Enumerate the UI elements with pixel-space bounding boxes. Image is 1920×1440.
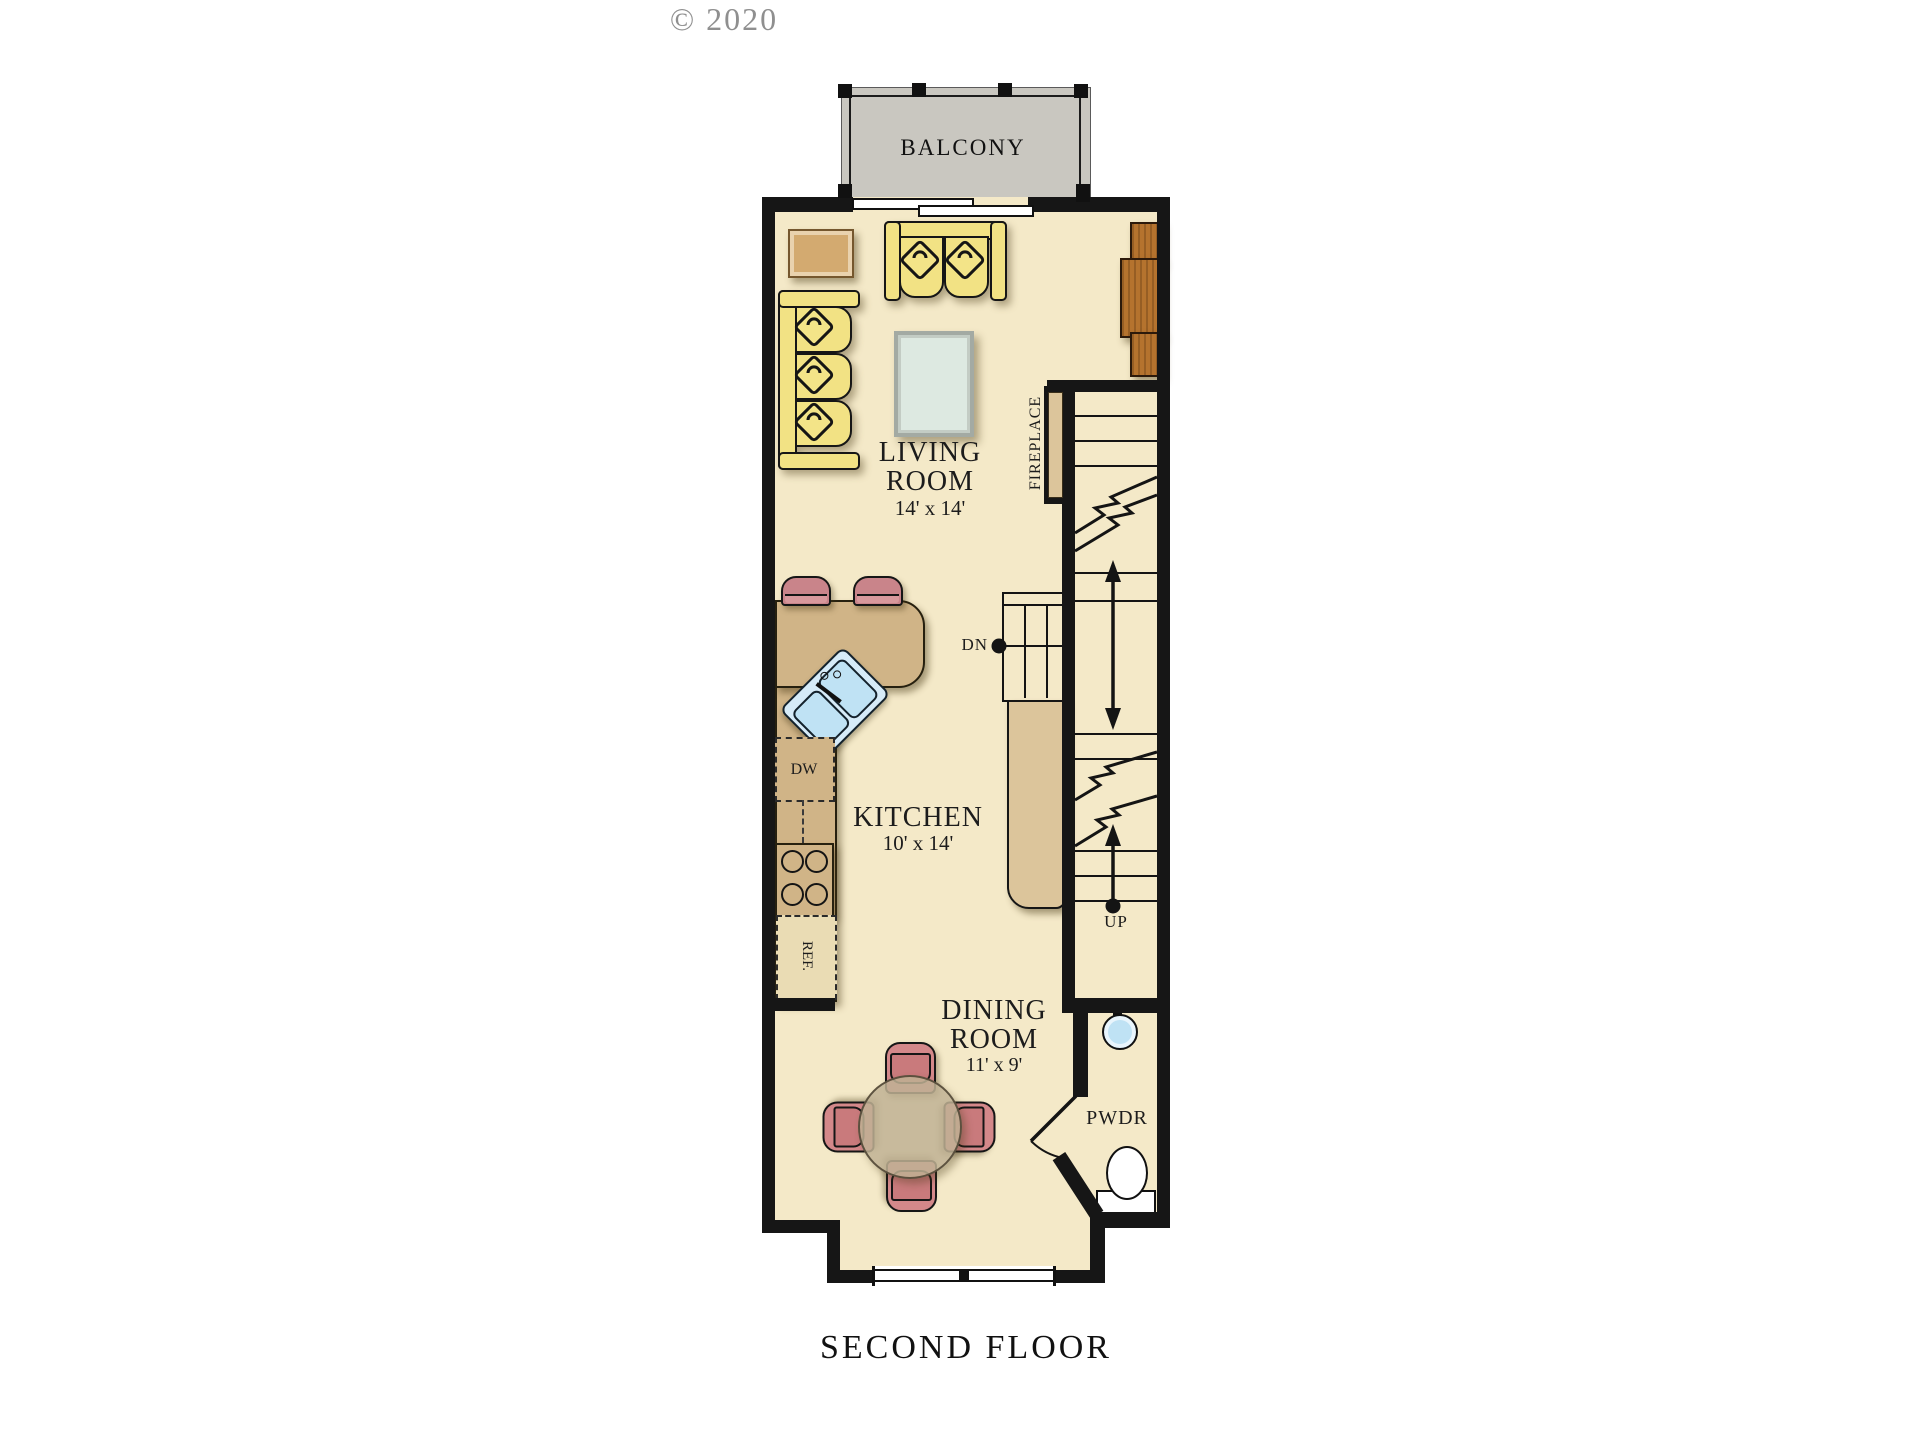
stair-arrow-icon xyxy=(0,0,1920,1440)
balcony-label: BALCONY xyxy=(863,136,1063,160)
fireplace-label: FIREPLACE xyxy=(1028,383,1046,503)
living-room-dims: 14' x 14' xyxy=(830,497,1030,519)
living-room-label-line1: LIVING xyxy=(830,438,1030,467)
dining-room-label-line1: DINING xyxy=(894,996,1094,1025)
page-title: SECOND FLOOR xyxy=(766,1330,1166,1366)
refrigerator-label: REF. xyxy=(798,916,814,996)
kitchen-label: KITCHEN 10' x 14' xyxy=(818,803,1018,854)
powder-room-label: PWDR xyxy=(1067,1108,1167,1129)
dining-room-label: DINING ROOM 11' x 9' xyxy=(894,996,1094,1076)
copyright-text: © 2020 xyxy=(624,3,824,37)
living-room-label-line2: ROOM xyxy=(830,467,1030,496)
floor-plan-page: © 2020 BALCONY xyxy=(0,0,1920,1440)
stairs-up-label: UP xyxy=(1092,913,1140,931)
living-room-label: LIVING ROOM 14' x 14' xyxy=(830,438,1030,519)
kitchen-label-line1: KITCHEN xyxy=(818,803,1018,832)
dining-room-label-line2: ROOM xyxy=(894,1025,1094,1054)
stairs-down-label: DN xyxy=(938,636,988,654)
dining-room-dims: 11' x 9' xyxy=(894,1055,1094,1076)
kitchen-dims: 10' x 14' xyxy=(818,832,1018,854)
dishwasher-label: DW xyxy=(775,762,833,779)
